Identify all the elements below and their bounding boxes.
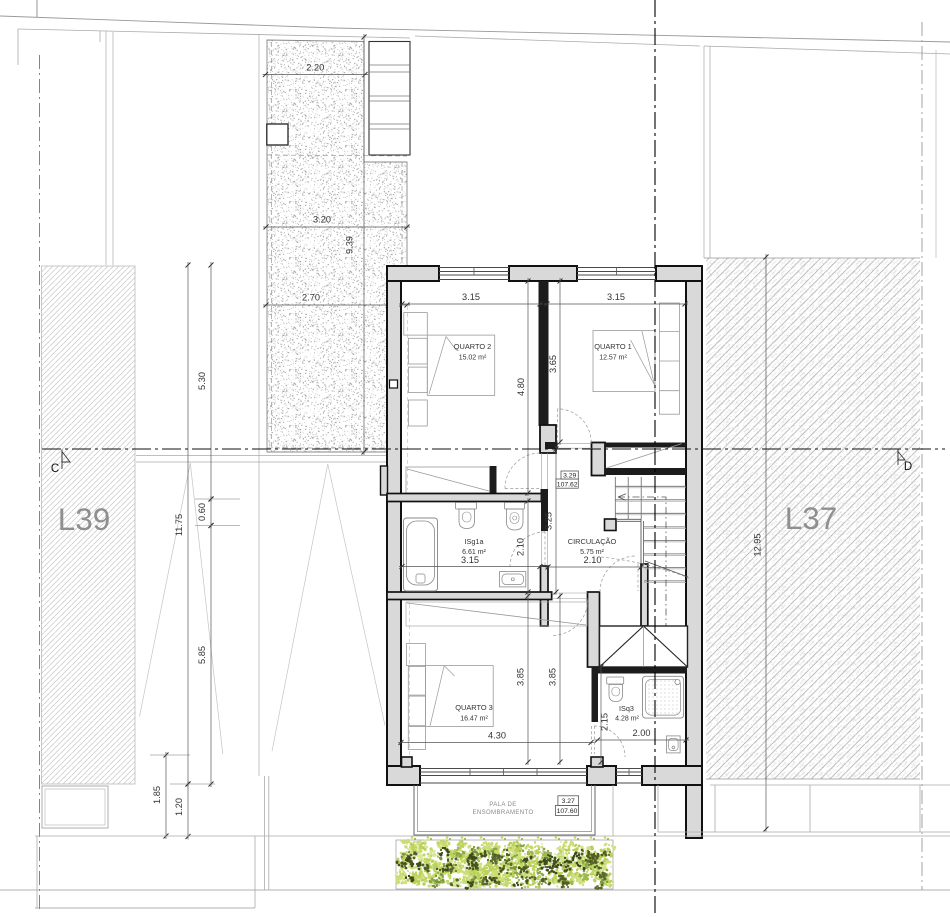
svg-text:15.02 m²: 15.02 m² <box>459 355 487 362</box>
svg-text:5.30: 5.30 <box>197 372 207 390</box>
svg-text:107.62: 107.62 <box>557 482 578 489</box>
svg-text:1.85: 1.85 <box>152 786 162 804</box>
svg-text:16.47 m²: 16.47 m² <box>460 716 488 723</box>
svg-text:2.15: 2.15 <box>600 713 610 731</box>
svg-text:4.30: 4.30 <box>488 731 506 741</box>
svg-text:CIRCULAÇÃO: CIRCULAÇÃO <box>568 537 617 546</box>
svg-text:QUARTO 2: QUARTO 2 <box>454 342 492 351</box>
svg-text:4.28 m²: 4.28 m² <box>615 716 639 723</box>
svg-text:3.20: 3.20 <box>313 215 331 225</box>
svg-text:107.60: 107.60 <box>557 808 578 815</box>
svg-text:2.10: 2.10 <box>584 555 602 565</box>
svg-text:3.15: 3.15 <box>462 292 480 302</box>
svg-text:0.60: 0.60 <box>197 503 207 521</box>
svg-text:4.80: 4.80 <box>516 378 526 396</box>
svg-text:ENSOMBRAMENTO: ENSOMBRAMENTO <box>472 810 533 816</box>
svg-text:2.10: 2.10 <box>516 538 526 556</box>
svg-text:11.75: 11.75 <box>174 514 184 536</box>
svg-text:3.27: 3.27 <box>562 798 575 805</box>
svg-text:ISq3: ISq3 <box>619 704 634 713</box>
svg-text:2.20: 2.20 <box>306 63 324 73</box>
svg-text:9.39: 9.39 <box>345 236 355 254</box>
svg-text:C: C <box>51 463 59 475</box>
svg-text:3.29: 3.29 <box>563 473 576 480</box>
svg-text:2.00: 2.00 <box>633 728 651 738</box>
svg-text:1.20: 1.20 <box>174 798 184 816</box>
svg-text:3.85: 3.85 <box>548 668 558 686</box>
svg-text:12.57 m²: 12.57 m² <box>599 355 627 362</box>
svg-text:12.95: 12.95 <box>753 534 763 557</box>
svg-text:3.65: 3.65 <box>548 355 558 373</box>
svg-text:L39: L39 <box>58 501 111 537</box>
svg-text:2.70: 2.70 <box>302 293 320 303</box>
svg-text:3.15: 3.15 <box>607 292 625 302</box>
svg-text:3.15: 3.15 <box>461 555 479 565</box>
svg-text:3.85: 3.85 <box>516 668 526 686</box>
svg-text:ISg1a: ISg1a <box>464 537 484 546</box>
svg-text:L37: L37 <box>785 500 838 536</box>
svg-text:QUARTO 3: QUARTO 3 <box>455 703 493 712</box>
svg-text:3.25: 3.25 <box>544 512 554 530</box>
svg-text:PALA DE: PALA DE <box>489 802 516 808</box>
svg-text:5.85: 5.85 <box>197 646 207 664</box>
svg-text:QUARTO 1: QUARTO 1 <box>594 342 632 351</box>
svg-text:D: D <box>904 461 912 473</box>
